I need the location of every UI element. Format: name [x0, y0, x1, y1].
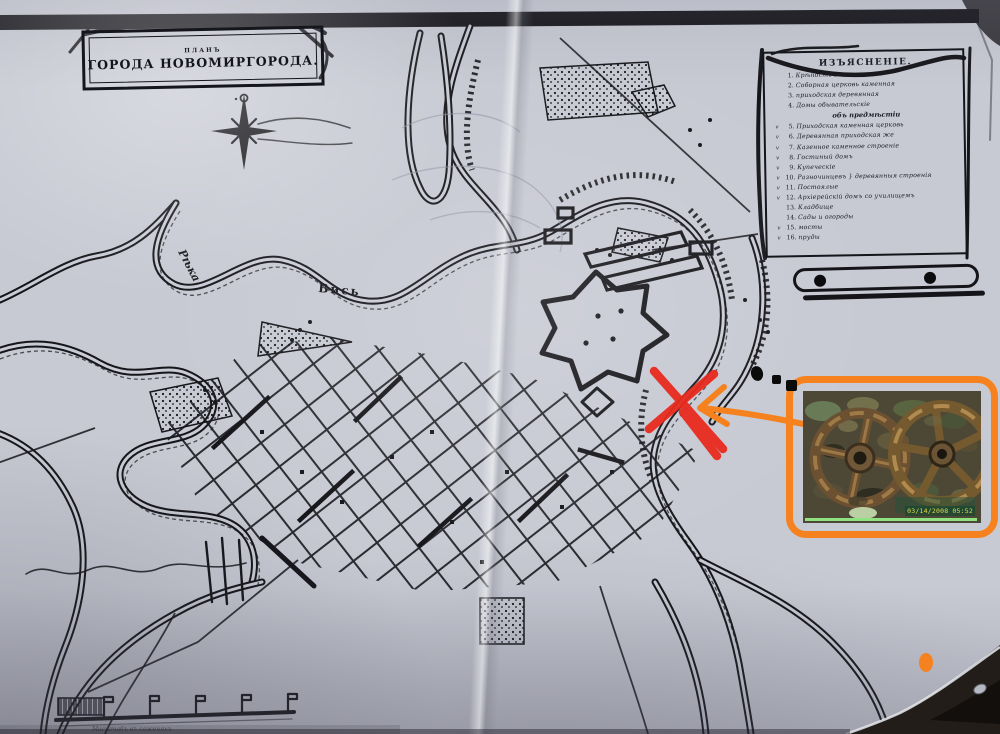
gears-photo-art — [803, 391, 981, 523]
orange-dot-mark — [919, 653, 933, 672]
legend-item-text: Архіерейскій домъ со училищемъ — [798, 191, 915, 203]
legend-item-text: Купеческіе — [797, 162, 836, 173]
legend-box: ИЗЪЯСНЕНІЕ. 1.Крѣпость земляная 2.Соборн… — [762, 48, 968, 257]
photo-timestamp: 03/14/2008 05:52 — [905, 506, 975, 516]
legend-header: ИЗЪЯСНЕНІЕ. — [774, 56, 956, 69]
legend-item-text: Кладбище — [798, 203, 834, 214]
inset-photo: 03/14/2008 05:52 — [803, 391, 981, 523]
legend-item-number: 3. — [783, 91, 794, 101]
title-cartouche: ПЛАНЪ ГОРОДА НОВОМИРГОРОДА. — [81, 25, 324, 90]
legend-item-text: пруды — [798, 233, 820, 243]
inset-photo-frame: 03/14/2008 05:52 — [786, 376, 998, 538]
black-dot-mark-3 — [786, 380, 797, 391]
page-title: ГОРОДА НОВОМИРГОРОДА. — [87, 52, 318, 72]
legend-item-number: 6. — [784, 133, 795, 143]
legend-check-mark: v — [776, 153, 782, 163]
legend-item-number: 10. — [784, 173, 795, 183]
legend-item-number: 1. — [783, 71, 794, 81]
legend-check-mark: v — [777, 234, 783, 244]
river-label-reka: Рѣка — [175, 246, 203, 283]
legend-item-number: 5. — [783, 123, 794, 133]
legend-check-mark: v — [776, 133, 782, 143]
legend-item: v16.пруды — [777, 231, 959, 244]
antique-town-plan-photograph: Рѣка Вись Масштабъ въ саженяхъ ПЛАНЪ ГОР… — [0, 0, 1000, 734]
plan-word: ПЛАНЪ — [184, 46, 221, 54]
legend-item-number: 12. — [785, 193, 796, 203]
legend-item-number: 9. — [784, 163, 795, 173]
black-dot-mark-2 — [772, 375, 781, 384]
surveyor-signature-scrawl — [26, 538, 314, 604]
legend-check-mark: v — [775, 123, 781, 133]
scale-caption: Масштабъ въ саженяхъ — [91, 726, 172, 733]
legend-cartouche-bar — [793, 264, 980, 293]
legend-check-mark: v — [777, 183, 783, 193]
photo-green-strip — [805, 518, 977, 521]
legend-item-number: 14. — [785, 213, 796, 223]
legend-item-text: Гостиный домъ — [797, 152, 853, 163]
legend-item-number: 15. — [785, 224, 796, 234]
legend-item-number: 7. — [784, 143, 795, 153]
legend-item-text: Постоялые — [798, 182, 839, 193]
legend-item-text: мосты — [798, 223, 822, 234]
legend-check-mark: v — [777, 193, 783, 203]
legend-check-mark: v — [776, 143, 782, 153]
legend-check-mark: v — [777, 224, 783, 234]
legend-item-text: Сады и огороды — [798, 212, 853, 223]
bar-dot — [924, 272, 936, 284]
scale-bar: Масштабъ въ саженяхъ — [56, 694, 297, 733]
legend-item-number: 13. — [785, 203, 796, 213]
legend-item-number: 11. — [785, 183, 796, 193]
river-label-vis: Вись — [318, 281, 362, 299]
legend-check-mark: v — [776, 173, 782, 183]
legend-item-number: 2. — [783, 81, 794, 91]
legend-item-number: 8. — [784, 153, 795, 163]
legend-check-mark: v — [776, 163, 782, 173]
legend-item-number: 16. — [785, 234, 796, 244]
bar-dot — [814, 275, 826, 287]
legend-item-number: 4. — [783, 102, 794, 112]
compass-rose-icon — [211, 94, 352, 170]
